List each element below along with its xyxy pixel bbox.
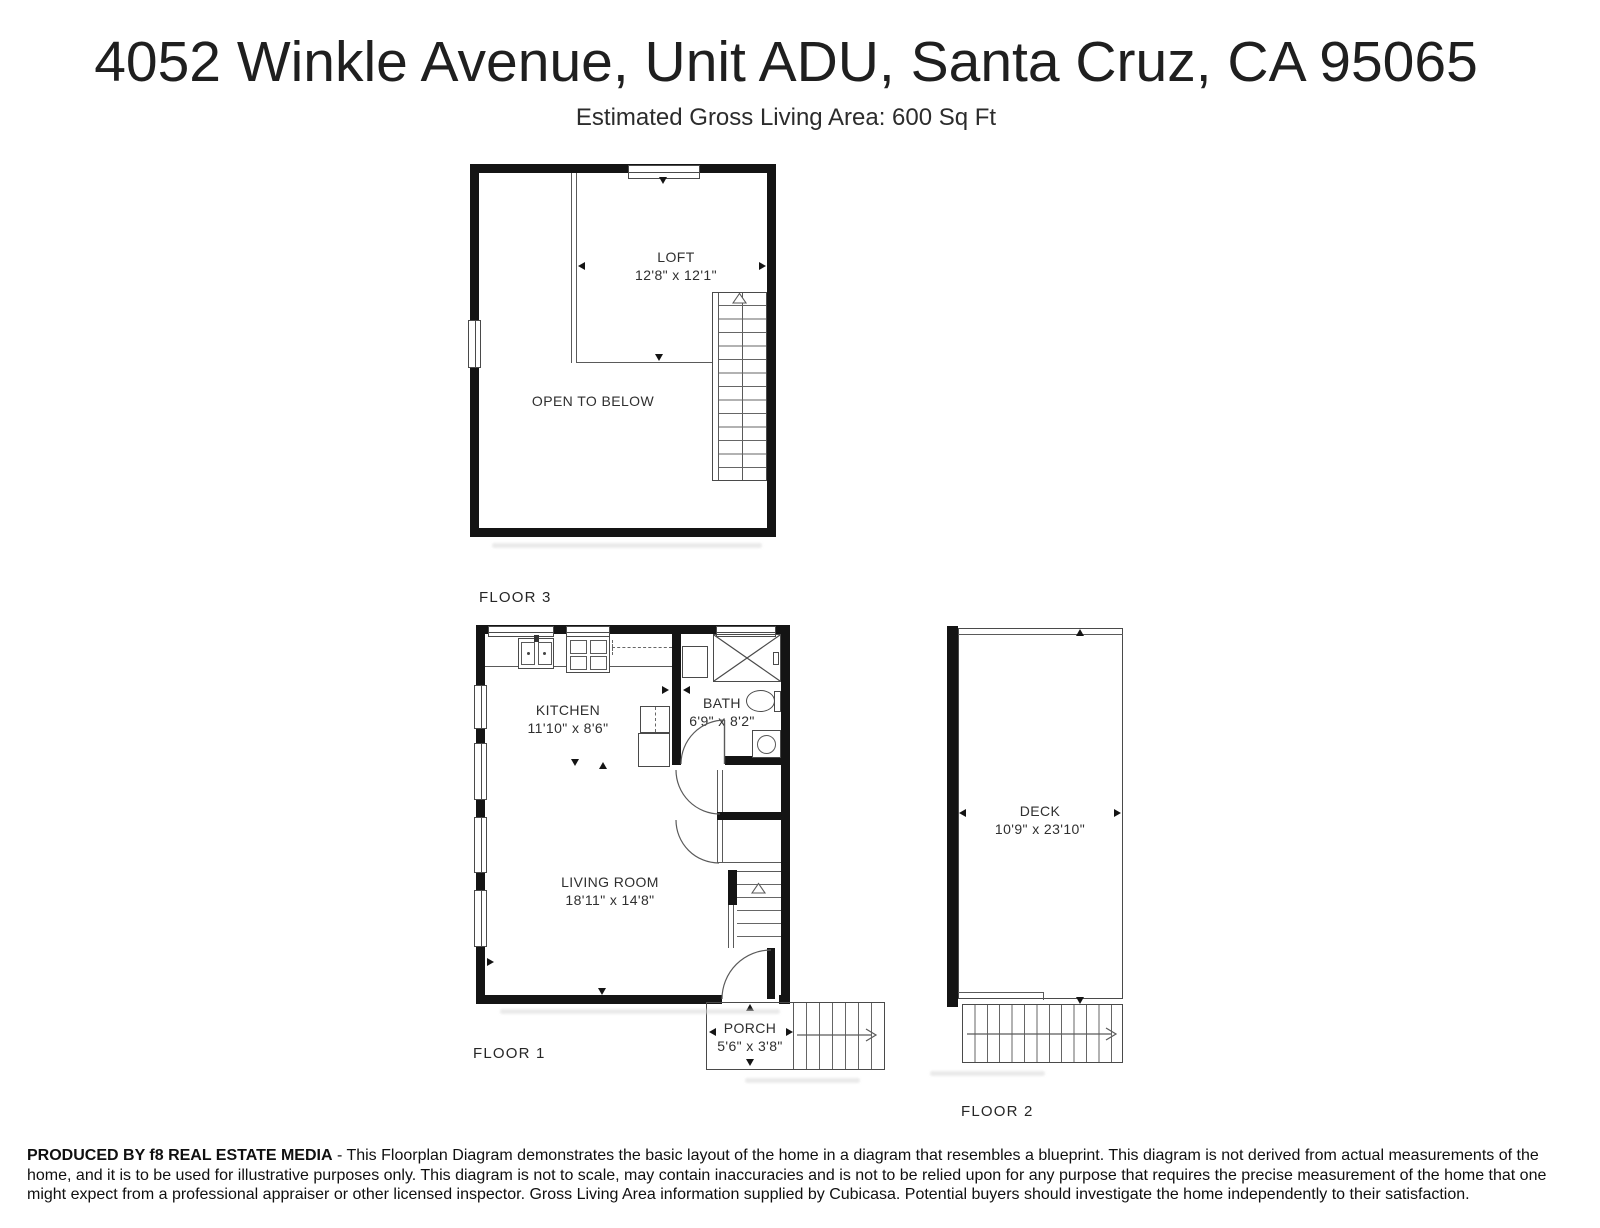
burner-icon: [590, 640, 607, 654]
bath-cabinet: [682, 646, 708, 678]
dimension-tick: [487, 958, 494, 966]
room-label-porch: PORCH 5'6" x 3'8": [717, 1020, 783, 1055]
counter-dashed-line: [612, 647, 672, 648]
room-label-loft: LOFT 12'8" x 12'1": [635, 249, 717, 284]
room-dims: 18'11" x 14'8": [561, 892, 659, 910]
shower: [713, 634, 781, 682]
tread-lines: [719, 305, 766, 480]
wall-segment: [947, 626, 958, 1007]
burner-icon: [570, 656, 587, 670]
appliance-box: [640, 706, 670, 733]
room-name: LIVING ROOM: [561, 874, 659, 892]
room-name: KITCHEN: [528, 702, 609, 720]
appliance-box: [638, 733, 670, 767]
bath-sink: [752, 730, 781, 758]
room-dims: 5'6" x 3'8": [717, 1038, 783, 1056]
dimension-tick: [598, 988, 606, 995]
shadow: [745, 1078, 860, 1083]
dimension-tick: [1114, 809, 1121, 817]
dimension-tick: [599, 762, 607, 769]
dimension-tick: [759, 262, 766, 270]
open-to-below-label: OPEN TO BELOW: [532, 393, 654, 411]
room-dims: 10'9" x 23'10": [995, 821, 1085, 839]
dimension-tick: [959, 809, 966, 817]
room-label-bath: BATH 6'9" x 8'2": [689, 695, 755, 730]
faucet-icon: [534, 635, 539, 642]
stove: [566, 636, 610, 673]
shadow: [930, 1071, 1045, 1076]
tread-lines: [963, 1005, 1122, 1062]
room-label-kitchen: KITCHEN 11'10" x 8'6": [528, 702, 609, 737]
shower-valve-icon: [773, 652, 779, 665]
window-symbol: [474, 890, 487, 947]
dimension-tick: [662, 686, 669, 694]
room-dims: 11'10" x 8'6": [528, 720, 609, 738]
window-symbol: [474, 743, 487, 800]
room-label-living-room: LIVING ROOM 18'11" x 14'8": [561, 874, 659, 909]
floor2-label: FLOOR 2: [961, 1103, 1034, 1120]
dimension-tick: [683, 686, 690, 694]
room-name: DECK: [995, 803, 1085, 821]
shadow: [500, 1009, 780, 1014]
page-title: 4052 Winkle Avenue, Unit ADU, Santa Cruz…: [0, 30, 1572, 94]
loft-edge-line: [577, 362, 712, 363]
dimension-tick: [746, 1059, 754, 1066]
burner-icon: [570, 640, 587, 654]
shadow: [492, 543, 762, 548]
window-symbol: [474, 685, 487, 729]
room-dims: 12'8" x 12'1": [635, 267, 717, 285]
tread-lines: [794, 1003, 884, 1069]
window-symbol: [468, 320, 481, 368]
dimension-tick: [709, 1028, 716, 1036]
wall-segment: [728, 870, 737, 905]
room-label-deck: DECK 10'9" x 23'10": [995, 803, 1085, 838]
room-name: BATH: [689, 695, 755, 713]
dimension-tick: [571, 759, 579, 766]
dimension-tick: [578, 262, 585, 270]
wall-segment: [672, 634, 681, 765]
deck-railing-line: [958, 992, 1044, 1000]
dimension-tick: [786, 1028, 793, 1036]
closet-edge-line: [717, 862, 781, 863]
room-dims: 6'9" x 8'2": [689, 713, 755, 731]
producer-credit: PRODUCED BY f8 REAL ESTATE MEDIA: [27, 1147, 333, 1164]
wall-segment: [717, 812, 781, 820]
floor3-label: FLOOR 3: [479, 589, 552, 606]
dimension-tick: [1076, 997, 1084, 1004]
sink-basin: [757, 735, 776, 754]
deck-railing-line: [958, 634, 1123, 635]
kitchen-sink: [518, 638, 554, 669]
window-symbol: [474, 817, 487, 873]
window-symbol: [488, 626, 554, 637]
tread-lines: [737, 884, 781, 946]
entry-door-leaf: [767, 948, 775, 999]
toilet-tank: [774, 691, 781, 712]
burner-icon: [590, 656, 607, 670]
room-name: LOFT: [635, 249, 717, 267]
floorplan-page: 4052 Winkle Avenue, Unit ADU, Santa Cruz…: [0, 0, 1600, 1228]
closet-door-panel: [717, 770, 723, 812]
dimension-tick: [655, 354, 663, 361]
stair-edge-line: [737, 871, 781, 872]
dimension-tick: [1076, 629, 1084, 636]
disclaimer-text: PRODUCED BY f8 REAL ESTATE MEDIA - This …: [27, 1146, 1575, 1205]
loft-edge-line: [571, 173, 577, 363]
closet-door-panel: [717, 820, 723, 862]
stair-half-wall: [728, 905, 734, 948]
room-name: PORCH: [717, 1020, 783, 1038]
floor1-label: FLOOR 1: [473, 1045, 546, 1062]
dimension-tick: [659, 177, 667, 184]
page-subtitle: Estimated Gross Living Area: 600 Sq Ft: [0, 102, 1572, 134]
